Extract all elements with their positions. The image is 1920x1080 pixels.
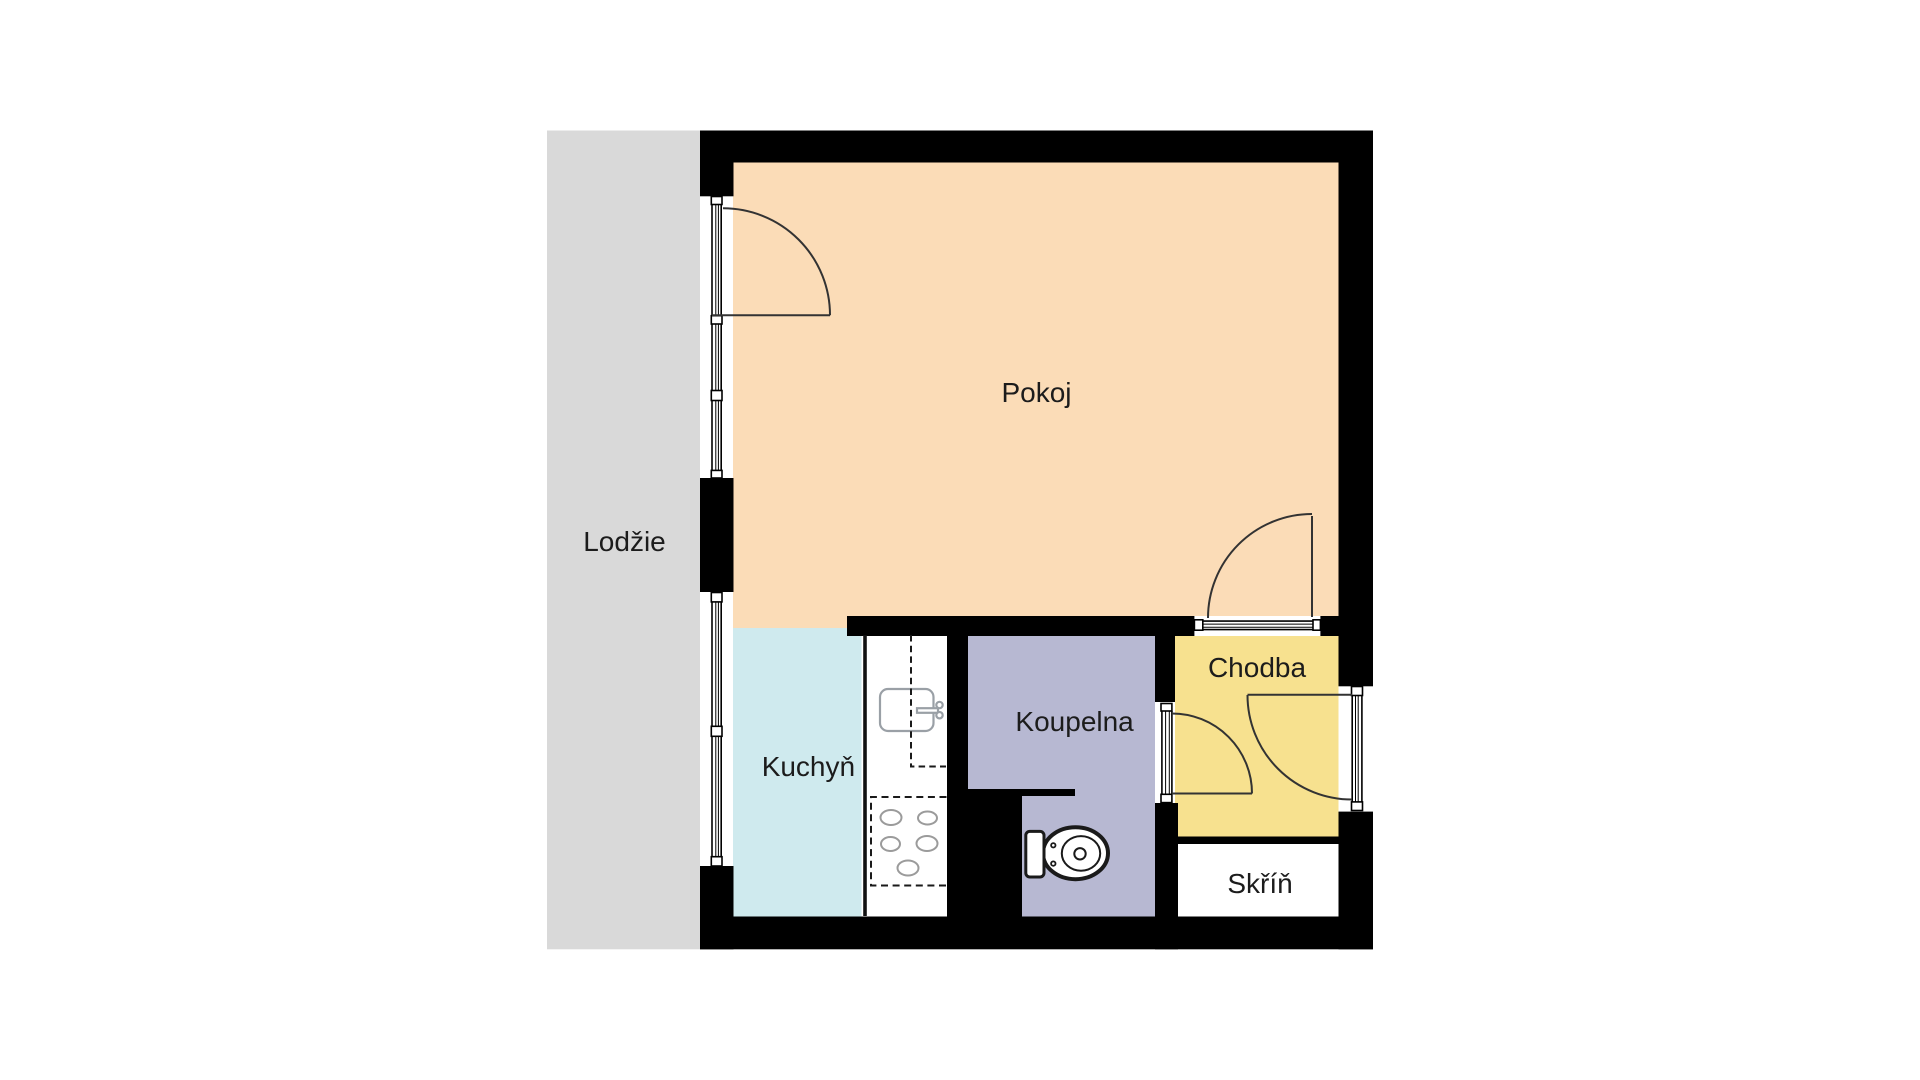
svg-text:Kuchyň: Kuchyň bbox=[762, 751, 855, 782]
svg-text:Lodžie: Lodžie bbox=[583, 526, 666, 557]
svg-text:Skříň: Skříň bbox=[1227, 868, 1292, 899]
svg-text:Chodba: Chodba bbox=[1208, 652, 1307, 683]
svg-text:Pokoj: Pokoj bbox=[1001, 377, 1071, 408]
svg-text:Koupelna: Koupelna bbox=[1015, 706, 1134, 737]
